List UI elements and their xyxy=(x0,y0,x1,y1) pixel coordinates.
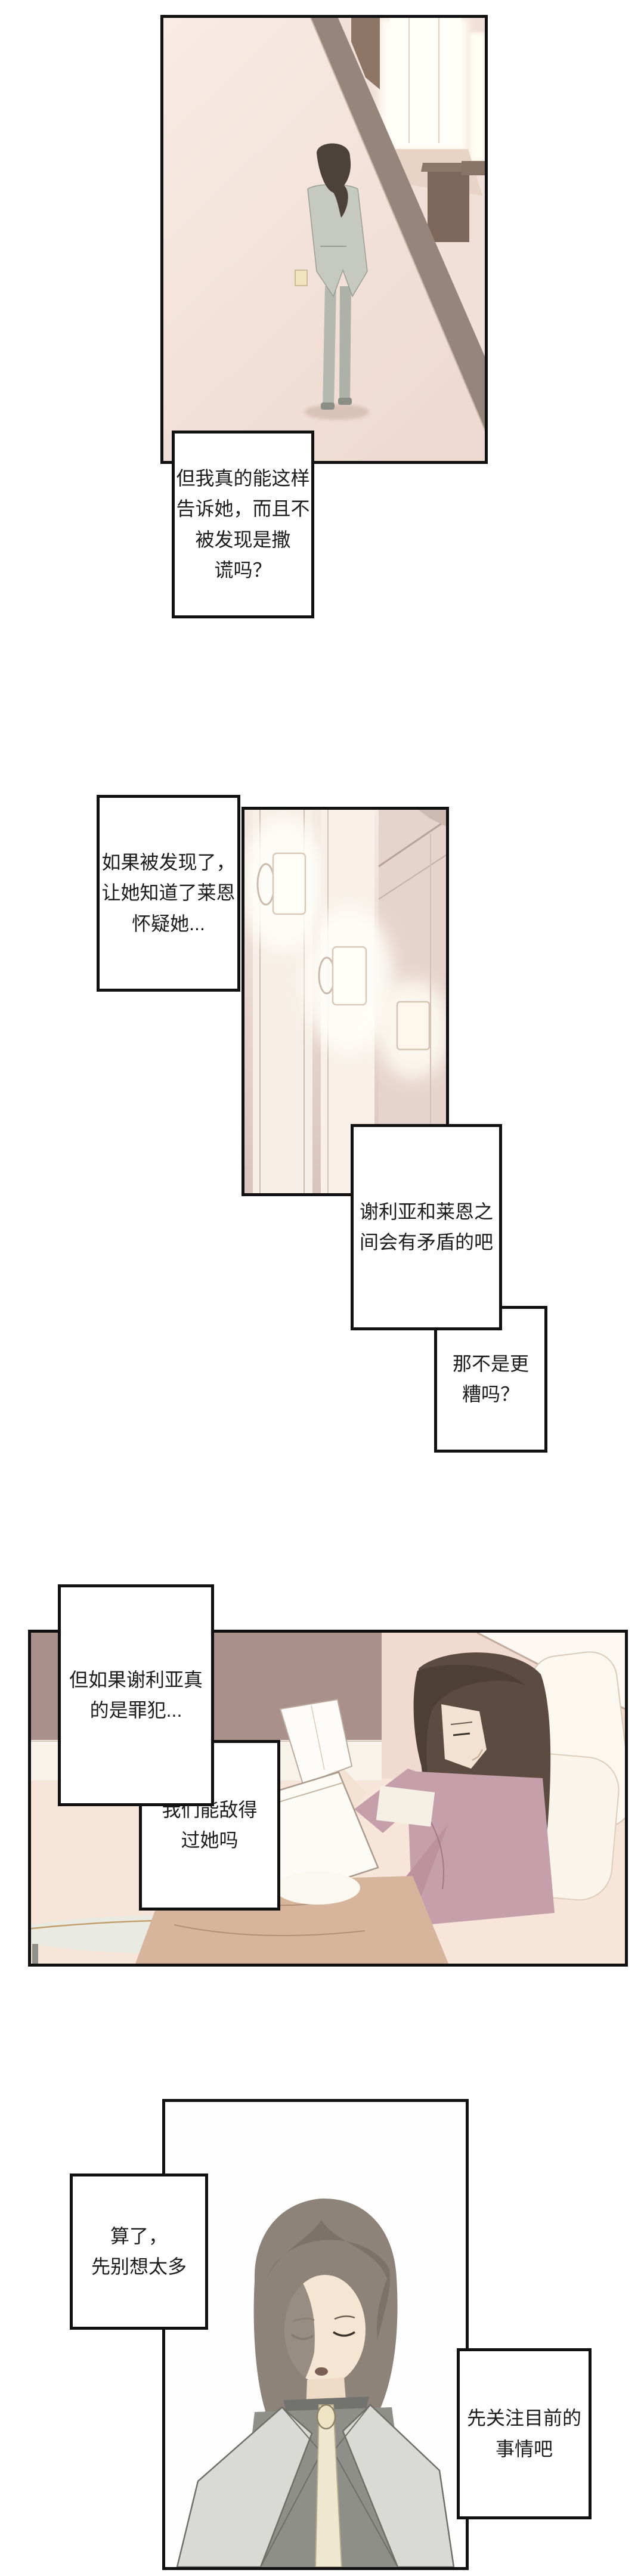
bubble-line: 如果被发现了， xyxy=(101,847,235,878)
speech-bubble-6: 算了， 先别想太多 xyxy=(70,2173,208,2330)
tie-clasp xyxy=(317,2405,335,2429)
paper-on-bed xyxy=(376,1786,435,1827)
bubble-line: 但我真的能这样 xyxy=(176,463,309,494)
bubble-line: 先别想太多 xyxy=(91,2252,187,2282)
bubble-line: 谎吗？ xyxy=(214,555,271,586)
bubble-line: 怀疑她... xyxy=(132,909,205,939)
comic-panel-4 xyxy=(162,2099,469,2570)
white-sheet xyxy=(274,1871,360,1905)
speech-bubble-3: 谢利亚和莱恩之 间会有矛盾的吧 xyxy=(351,1124,502,1330)
speech-bubble-5a: 但如果谢利亚真 的是罪犯... xyxy=(58,1584,214,1806)
bubble-line: 那不是更 xyxy=(453,1349,529,1379)
bubble-line: 糟吗？ xyxy=(462,1379,519,1410)
bubble-line: 谢利亚和莱恩之 xyxy=(360,1197,493,1227)
bubble-line: 算了， xyxy=(110,2221,168,2252)
comic-page: 但我真的能这样 告诉她，而且不 被发现是撒 谎吗？ xyxy=(0,0,644,2576)
bubble-line: 让她知道了莱恩 xyxy=(101,878,235,908)
left-leg xyxy=(323,286,336,406)
bubble-line: 事情吧 xyxy=(496,2434,553,2464)
comic-panel-1 xyxy=(160,15,488,464)
right-leg xyxy=(339,286,351,401)
corridor-walk-art xyxy=(163,18,485,461)
bubble-line: 先关注目前的 xyxy=(467,2403,581,2433)
speech-bubble-7: 先关注目前的 事情吧 xyxy=(457,2348,592,2519)
suit-man-art xyxy=(165,2102,466,2567)
sofa-leg xyxy=(32,1944,38,1964)
open-mouth xyxy=(315,2367,328,2376)
bubble-line: 过她吗 xyxy=(181,1825,238,1856)
bubble-line: 间会有矛盾的吧 xyxy=(360,1227,493,1258)
left-shoe xyxy=(321,402,335,410)
letter-in-hand xyxy=(295,270,307,286)
bubble-line: 的是罪犯... xyxy=(90,1695,182,1726)
speech-bubble-2: 如果被发现了， 让她知道了莱恩 怀疑她... xyxy=(97,795,240,992)
bubble-line: 告诉她，而且不 xyxy=(176,494,309,524)
right-shoe xyxy=(338,398,352,405)
bubble-line: 但如果谢利亚真 xyxy=(69,1665,203,1695)
bubble-line: 被发现是撒 xyxy=(195,525,290,555)
floor-shadow xyxy=(305,404,369,420)
speech-bubble-1: 但我真的能这样 告诉她，而且不 被发现是撒 谎吗？ xyxy=(172,431,314,618)
